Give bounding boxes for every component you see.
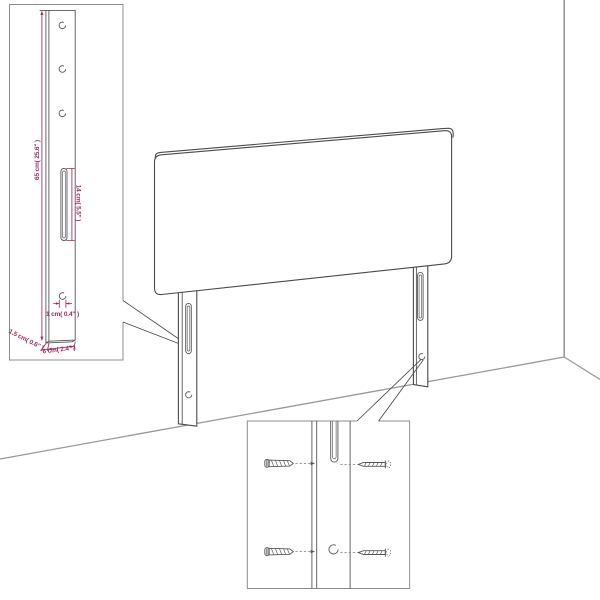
- leg-hole-4: [59, 293, 66, 300]
- diagram-canvas: 65 cm( 25.6" ) 14 cm( 5.5" ) 1 cm( 0.4" …: [0, 0, 600, 600]
- headboard-drawing: [155, 128, 454, 426]
- dimension-label-slot-length: 14 cm( 5.5" ): [74, 185, 81, 222]
- floor-line-right: [564, 357, 600, 380]
- leader-line: [357, 359, 421, 421]
- dimension-label-leg-height: 65 cm( 25.6" ): [34, 140, 41, 180]
- headboard-panel: [155, 128, 454, 294]
- headboard-left-leg: [178, 286, 196, 426]
- detail-box-bottom: [247, 421, 409, 589]
- left-leg-slot: [186, 303, 192, 353]
- detail-inset-screw-mounting: [247, 421, 409, 589]
- headboard-right-leg: [413, 259, 427, 387]
- dimension-label-hole-diameter: 1 cm( 0.4" ): [46, 311, 79, 318]
- left-leg-hole: [186, 392, 192, 398]
- leg-hole-2: [59, 66, 66, 73]
- detail-inset-leg-side-view: 65 cm( 25.6" ) 14 cm( 5.5" ) 1 cm( 0.4" …: [7, 5, 123, 361]
- leg-hole-1: [59, 22, 66, 29]
- leader-line: [379, 360, 424, 421]
- strip-hole: [329, 545, 338, 554]
- right-leg-hole: [419, 354, 425, 360]
- leg-slot: [61, 169, 67, 241]
- panel-front-face: [155, 131, 452, 295]
- callout-leader-lines: [123, 301, 423, 422]
- diagram-page: 65 cm( 25.6" ) 14 cm( 5.5" ) 1 cm( 0.4" …: [0, 0, 600, 600]
- leg-hole-3: [59, 110, 66, 117]
- right-leg-slot: [418, 272, 424, 320]
